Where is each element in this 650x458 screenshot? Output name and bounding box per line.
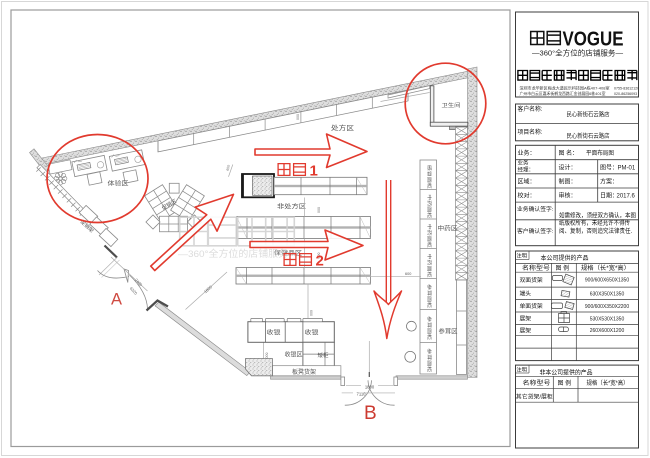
svg-text:中药圆柜: 中药圆柜	[426, 254, 433, 278]
svg-text:业务：: 业务：	[518, 149, 536, 157]
svg-text:客户确认签字:: 客户确认签字:	[517, 227, 554, 235]
svg-text:项目名称:: 项目名称:	[518, 128, 543, 136]
svg-text:非处方区: 非处方区	[277, 203, 306, 211]
svg-text:图 例: 图 例	[558, 379, 572, 387]
svg-text:参茸圆柜: 参茸圆柜	[426, 348, 433, 372]
svg-text:其它货架/展柜: 其它货架/展柜	[516, 393, 553, 401]
svg-text:纸版权所有，未经允许不得传: 纸版权所有，未经允许不得传	[559, 219, 630, 227]
svg-text:—360°全方位的店铺服务—: —360°全方位的店铺服务—	[532, 49, 624, 58]
svg-text:深圳市龙华新区梅龙大道民乐科技园A栋407-408室: 深圳市龙华新区梅龙大道民乐科技园A栋407-408室	[520, 86, 610, 91]
svg-text:名称型号: 名称型号	[523, 379, 551, 387]
svg-text:收银: 收银	[267, 329, 281, 337]
svg-text:卫生间: 卫生间	[442, 102, 461, 109]
svg-text:民心新街石云路店: 民心新街石云路店	[567, 111, 610, 119]
svg-text:业务确认签字:: 业务确认签字:	[517, 205, 554, 213]
svg-text:审核：: 审核：	[559, 192, 577, 200]
svg-text:收银: 收银	[305, 329, 319, 337]
svg-text:广州市白云区嘉禾街鹤龙西路汇金创展园6栋401室: 广州市白云区嘉禾街鹤龙西路汇金创展园6栋401室	[520, 91, 606, 96]
svg-text:0755-83612120: 0755-83612120	[614, 87, 639, 91]
svg-text:矮柜: 矮柜	[318, 352, 329, 359]
svg-text:本公司提供的产品: 本公司提供的产品	[541, 254, 589, 262]
svg-text:1: 1	[310, 163, 318, 180]
svg-text:阅、复制，否则追究法律责任.: 阅、复制，否则追究法律责任.	[559, 227, 632, 235]
svg-text:感冒圆柜: 感冒圆柜	[426, 165, 433, 189]
svg-text:600: 600	[309, 310, 313, 316]
svg-text:双面货架: 双面货架	[520, 276, 543, 284]
svg-text:区域：: 区域：	[518, 178, 536, 186]
svg-text:2017.6: 2017.6	[617, 194, 636, 200]
svg-text:图号：: 图号：	[600, 165, 618, 172]
svg-text:630X350X1350: 630X350X1350	[590, 291, 625, 297]
svg-text:600: 600	[317, 207, 321, 213]
svg-text:7110: 7110	[356, 391, 366, 396]
svg-text:参茸圆柜: 参茸圆柜	[426, 284, 433, 308]
svg-text:530X530X1350: 530X530X1350	[590, 316, 625, 322]
svg-text:客户名称:: 客户名称:	[518, 105, 543, 113]
svg-text:制图：: 制图：	[559, 178, 577, 186]
svg-text:中药区: 中药区	[438, 225, 458, 233]
svg-text:600: 600	[296, 114, 300, 120]
svg-text:图 名：: 图 名：	[559, 149, 579, 157]
svg-text:名称型号: 名称型号	[522, 264, 550, 272]
svg-text:端头: 端头	[520, 290, 532, 298]
svg-text:单面货架: 单面货架	[520, 302, 543, 310]
svg-text:经理：: 经理：	[518, 166, 535, 174]
svg-text:B: B	[364, 403, 377, 424]
svg-text:1800: 1800	[365, 384, 375, 389]
svg-text:—360°全方位的店铺服务—: —360°全方位的店铺服务—	[178, 248, 299, 260]
svg-text:900/600X350X2200: 900/600X350X2200	[585, 304, 629, 310]
svg-text:非本公司提供的产品: 非本公司提供的产品	[540, 369, 593, 377]
svg-text:参茸区: 参茸区	[439, 328, 458, 336]
svg-text:VOGUE: VOGUE	[563, 29, 624, 51]
svg-text:A: A	[111, 291, 122, 309]
svg-text:020-86256093: 020-86256093	[614, 92, 637, 96]
svg-text:收银区: 收银区	[285, 351, 303, 359]
svg-text:中药圆柜: 中药圆柜	[426, 224, 433, 248]
svg-text:规格（长*宽*高）: 规格（长*宽*高）	[581, 264, 630, 272]
svg-text:日期：: 日期：	[600, 192, 618, 200]
svg-text:规格（长*宽*高）: 规格（长*宽*高）	[587, 379, 629, 387]
svg-text:注明: 注明	[517, 252, 527, 260]
svg-text:设计：: 设计：	[559, 164, 577, 172]
svg-text:中药圆柜: 中药圆柜	[426, 194, 433, 218]
svg-text:260X600X1200: 260X600X1200	[590, 328, 625, 334]
svg-text:平面布局图: 平面布局图	[586, 149, 614, 157]
svg-text:600: 600	[265, 353, 269, 359]
svg-text:注明: 注明	[517, 366, 527, 374]
svg-text:业务: 业务	[518, 159, 530, 167]
svg-text:展架: 展架	[520, 327, 532, 334]
svg-text:参茸圆柜: 参茸圆柜	[426, 316, 433, 340]
svg-text:方案：: 方案：	[600, 178, 618, 186]
svg-text:600: 600	[405, 272, 411, 276]
svg-text:板凳货架: 板凳货架	[292, 368, 316, 376]
svg-text:图 例: 图 例	[556, 264, 570, 272]
svg-text:如需修改，须经双方确认，本图: 如需修改，须经双方确认，本图	[559, 212, 636, 220]
svg-text:PM-01: PM-01	[618, 166, 636, 172]
svg-text:2: 2	[316, 253, 324, 270]
svg-text:民心新街石云路店: 民心新街石云路店	[567, 132, 610, 140]
svg-text:900/600X650X1350: 900/600X650X1350	[585, 278, 629, 284]
svg-text:体验区: 体验区	[108, 180, 129, 188]
svg-text:展架: 展架	[520, 315, 532, 322]
svg-text:处方区: 处方区	[331, 123, 355, 132]
svg-text:校对：: 校对：	[518, 192, 536, 200]
